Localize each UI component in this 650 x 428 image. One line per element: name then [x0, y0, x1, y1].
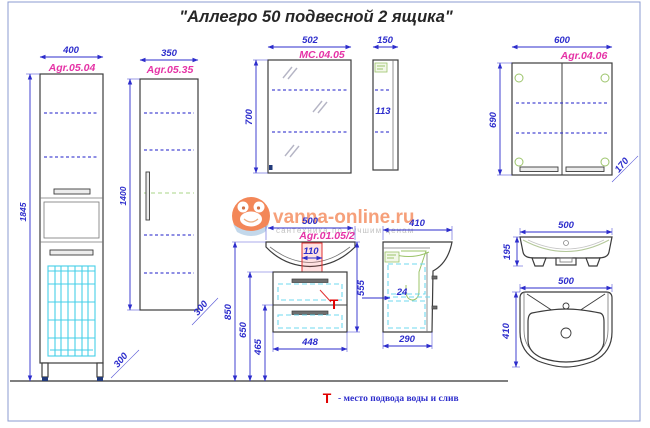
vanity-mount-height-dim: 850	[223, 303, 234, 320]
tall-cabinet-code: Agr.05.04	[48, 62, 96, 74]
water-marker: T	[330, 296, 339, 312]
sink-front-width-dim: 500	[558, 220, 575, 231]
mid-cabinet-height-dim: 1400	[118, 186, 128, 205]
wall-cabinet-height-dim: 690	[488, 111, 499, 128]
sink-front-drawing: 500 195	[502, 220, 612, 266]
foot-left	[42, 377, 48, 381]
vanity-side-offset-dim: 24	[396, 287, 408, 298]
drawer-handle-bottom	[292, 311, 328, 315]
wall-cabinet-code: Agr.04.06	[560, 50, 608, 62]
mid-cabinet-drawing: 350 Agr.05.35 1400 300	[118, 48, 218, 325]
legend-note: T - место подвода воды и слив	[323, 390, 459, 406]
sink-top-width-dim: 500	[558, 276, 575, 287]
legend-marker: T	[323, 390, 332, 406]
vanity-width-dim: 500	[302, 216, 319, 227]
side-top-box	[375, 63, 387, 72]
mirror-height-dim: 700	[244, 108, 255, 125]
drain-outlet	[556, 258, 576, 265]
faucet-hole	[563, 303, 569, 309]
sink-top-drawing: 500 410	[501, 276, 612, 367]
hinge-mark	[269, 165, 273, 170]
vanity-code: Agr.01.05/2	[298, 230, 355, 242]
door-handle-left	[520, 167, 558, 172]
sink-top-depth-dim: 410	[501, 322, 512, 340]
mid-cabinet-width-dim: 350	[161, 48, 178, 59]
drawing-page: "Аллегро 50 подвесной 2 ящика" 400 Agr.0…	[0, 0, 650, 428]
vanity-divider-dim: 465	[253, 338, 264, 356]
vanity-front-drawing: 500 Agr.01.05/2 110 T 555 448 850	[223, 216, 367, 381]
door-handle	[54, 189, 90, 194]
drawer-handle-top	[292, 279, 328, 283]
mirror-side-inner-dim: 113	[375, 106, 391, 117]
vanity-body-top-dim: 650	[238, 321, 249, 338]
mirror-side-depth-dim: 150	[377, 35, 394, 46]
tall-cabinet-width-dim: 400	[62, 45, 80, 56]
side-handle-top	[432, 276, 437, 279]
tall-cabinet-drawing: 400 Agr.05.04 1845 300	[18, 45, 139, 381]
tall-cabinet-height-dim: 1845	[18, 202, 28, 221]
drain-hole	[561, 328, 571, 338]
wall-cabinet-depth-dim: 170	[613, 155, 632, 175]
faucet-hole	[564, 241, 569, 246]
leg-left	[42, 363, 48, 377]
legend-text: - место подвода воды и слив	[338, 394, 459, 404]
vanity-side-depth-top-dim: 410	[408, 218, 426, 229]
foot-right	[97, 377, 103, 381]
basket-handle	[50, 250, 93, 255]
technical-drawing: "Аллегро 50 подвесной 2 ящика" 400 Agr.0…	[0, 0, 650, 428]
page-title: "Аллегро 50 подвесной 2 ящика"	[179, 8, 453, 26]
mirror-code: MC.04.05	[299, 49, 345, 61]
mirror-width-dim: 502	[302, 35, 319, 46]
sink-foot-right	[586, 258, 600, 266]
side-handle-bottom	[432, 306, 437, 309]
mirror-cabinet-front-drawing: 502 MC.04.05 700	[244, 35, 351, 173]
sink-foot-left	[532, 258, 546, 266]
mid-cabinet-code: Agr.05.35	[146, 64, 194, 76]
wall-cabinet-width-dim: 600	[554, 35, 571, 46]
door-handle-right	[566, 167, 604, 172]
vanity-drawer-width-dim: 448	[301, 337, 319, 348]
sink-front-height-dim: 195	[502, 243, 513, 260]
tall-cabinet-depth-dim: 300	[112, 350, 131, 370]
mirror-cabinet-side-drawing: 150 113	[373, 35, 398, 170]
frog-logo-icon	[232, 197, 270, 236]
watermark-site: vanna-online.ru	[273, 207, 414, 228]
door-handle	[146, 172, 150, 220]
vanity-cutout-dim: 110	[303, 246, 319, 257]
leg-right	[97, 363, 103, 377]
wall-cabinet-drawing: 600 Agr.04.06 690 170	[488, 35, 638, 182]
vanity-side-drawing: 410 24 290	[362, 218, 452, 349]
vanity-height-dim: 555	[356, 279, 367, 296]
vanity-side-depth-bottom-dim: 290	[398, 334, 416, 345]
